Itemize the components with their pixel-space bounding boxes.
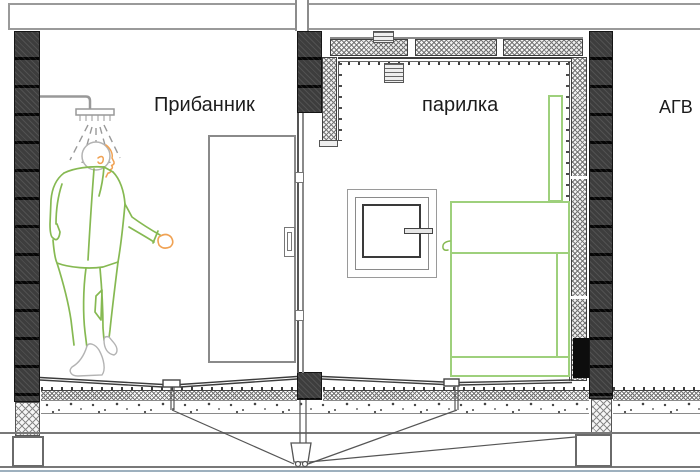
ceiling-slab	[8, 3, 700, 30]
floor-screed-hatch	[323, 390, 589, 401]
wall-right-brick	[589, 31, 613, 399]
person-figure	[50, 142, 173, 376]
stove-hook	[443, 241, 450, 250]
insulation-cap	[319, 140, 338, 147]
floor-screed-hatch	[41, 390, 297, 401]
wall-lining-middle	[338, 63, 342, 141]
ceiling-insulation-block	[330, 39, 408, 56]
wall-insulation-middle	[322, 57, 337, 143]
stove-base	[450, 356, 570, 377]
door-leaf	[208, 135, 296, 363]
person-body	[50, 167, 160, 348]
door-hinge	[295, 172, 304, 183]
shower-assembly	[40, 97, 120, 166]
door-hinge	[295, 310, 304, 321]
stove-body	[450, 252, 570, 358]
room-label-parilka: парилка	[422, 94, 498, 117]
shower-head	[76, 109, 114, 115]
person-hand	[158, 235, 173, 249]
person-feet	[70, 337, 117, 376]
ceiling-insulation-block	[415, 39, 497, 56]
door-frame	[302, 113, 304, 373]
wall-insulation-right	[571, 57, 587, 381]
roof-vent-box	[373, 31, 394, 43]
insulation-joint	[571, 176, 587, 179]
door-frame	[297, 113, 299, 373]
ceiling-insulation-block	[503, 39, 583, 56]
ceiling-board-ticks	[338, 62, 573, 65]
foundation-pillar-right	[575, 434, 612, 467]
foundation-left-hatch	[15, 402, 40, 436]
door-handle-plate	[287, 232, 292, 251]
concrete-slab	[41, 401, 589, 414]
chimney-pipe	[295, 0, 309, 31]
wall-middle-brick	[297, 31, 322, 113]
wall-middle-plinth	[297, 372, 322, 400]
concrete-slab	[613, 401, 700, 414]
area-label-agv: АГВ	[659, 97, 693, 118]
foundation-right-hatch	[591, 399, 612, 436]
foundation-pillar-left	[12, 436, 44, 467]
floor-drain-right	[444, 379, 459, 386]
stove-flue	[548, 95, 563, 202]
person-head	[82, 142, 110, 170]
floor-drain-left	[163, 380, 180, 387]
shower-head-comb	[80, 115, 110, 121]
room-label-pribannik: Прибанник	[154, 94, 255, 117]
stove-panel-line	[556, 254, 558, 356]
window-handle	[404, 228, 433, 234]
wall-left-brick	[14, 31, 40, 402]
person-face	[98, 145, 114, 177]
ceiling-vent-grille	[384, 63, 404, 83]
stove-firebox-tunnel	[573, 338, 589, 378]
drain-funnel	[291, 443, 311, 467]
bath-section-drawing: Прибанник парилка АГВ	[0, 0, 700, 473]
shower-pipe	[40, 97, 90, 110]
shower-spray	[70, 125, 120, 165]
insulation-joint	[571, 296, 587, 299]
floor-screed-hatch	[613, 390, 700, 401]
stove-heater-box	[450, 201, 570, 254]
ground-line	[0, 470, 700, 472]
